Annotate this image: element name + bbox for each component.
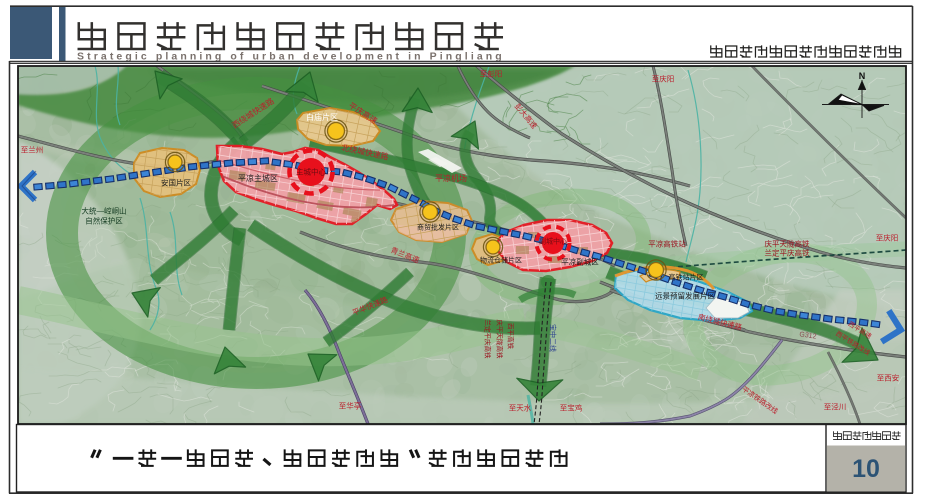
svg-text:至兰州: 至兰州 (21, 145, 44, 155)
svg-text:至彭阳: 至彭阳 (480, 69, 503, 79)
svg-text:远景预留发展片区: 远景预留发展片区 (655, 291, 715, 301)
svg-text:10: 10 (852, 455, 880, 483)
svg-text:副城中心: 副城中心 (539, 237, 567, 246)
svg-text:至宝鸡: 至宝鸡 (560, 403, 583, 413)
svg-text:Strategic planning of urban de: Strategic planning of urban development … (77, 51, 505, 63)
svg-text:平凉高铁站: 平凉高铁站 (648, 239, 686, 249)
svg-text:宝中二线: 宝中二线 (549, 324, 558, 352)
svg-text:至西安: 至西安 (877, 373, 900, 383)
svg-text:至泾川: 至泾川 (824, 403, 847, 412)
svg-text:至天水: 至天水 (509, 403, 532, 413)
svg-text:至庆阳: 至庆阳 (652, 74, 675, 84)
svg-text:大统—崆峒山: 大统—崆峒山 (82, 206, 127, 216)
svg-text:白庙片区: 白庙片区 (306, 112, 338, 122)
svg-text:高铁站片区: 高铁站片区 (669, 273, 704, 282)
svg-text:N: N (859, 71, 866, 81)
svg-text:兰定平庆高铁: 兰定平庆高铁 (765, 248, 810, 258)
svg-text:自然保护区: 自然保护区 (85, 216, 123, 226)
svg-text:主城中心: 主城中心 (296, 167, 326, 177)
svg-text:至庆阳: 至庆阳 (876, 233, 899, 243)
svg-text:平凉副城区: 平凉副城区 (561, 257, 599, 267)
svg-text:安国片区: 安国片区 (161, 178, 191, 188)
svg-text:平凉机场: 平凉机场 (435, 173, 467, 183)
svg-text:商贸批发片区: 商贸批发片区 (417, 223, 459, 232)
svg-text:庆平天陇高铁: 庆平天陇高铁 (496, 320, 505, 360)
svg-text:西平高铁: 西平高铁 (507, 323, 516, 350)
svg-text:至华亭: 至华亭 (339, 401, 362, 411)
svg-text:平凉主城区: 平凉主城区 (238, 173, 278, 183)
svg-text:物流仓储片区: 物流仓储片区 (480, 256, 522, 265)
svg-text:庆平天陇高铁: 庆平天陇高铁 (765, 239, 810, 249)
svg-text:兰定平庆高铁: 兰定平庆高铁 (484, 320, 493, 360)
